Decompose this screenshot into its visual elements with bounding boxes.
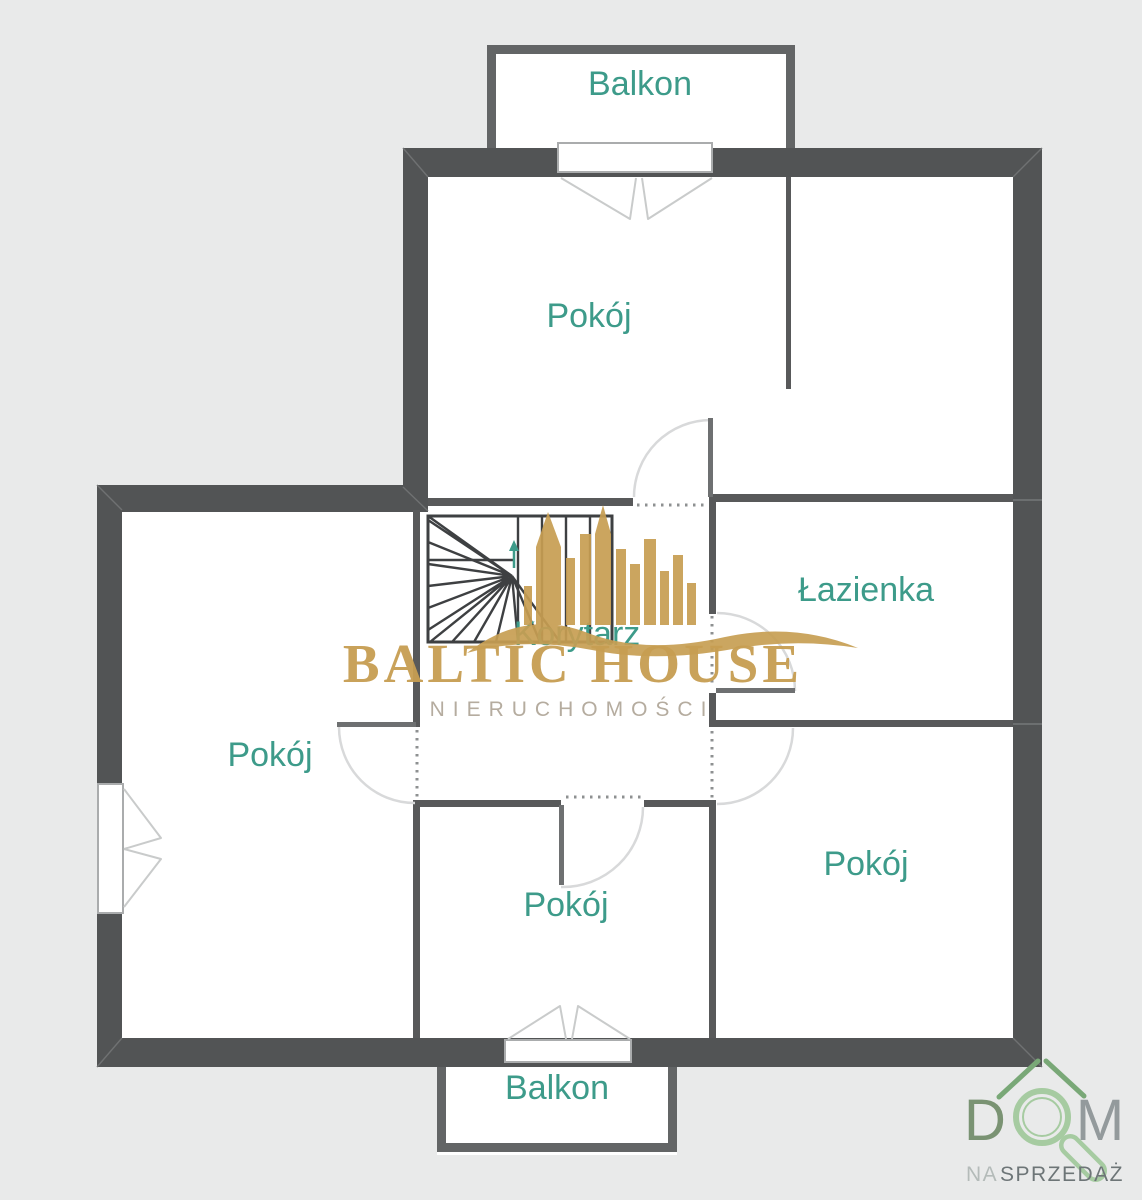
window-frame (98, 784, 123, 913)
room-label-lazienka: Łazienka (798, 571, 934, 609)
room-label-balkon-bottom: Balkon (505, 1069, 609, 1107)
door-leaf (708, 418, 713, 497)
door-leaf (559, 805, 564, 885)
room-label-pokoj-middle: Pokój (523, 886, 608, 924)
door-leaf (337, 722, 416, 727)
watermark-subtitle: NIERUCHOMOŚCI (430, 697, 715, 721)
balcony-door-sill (558, 143, 712, 172)
logo-letter-d: D (964, 1088, 1006, 1153)
floor-plan-page: Balkon Pokój Łazienka Korytarz Pokój Pok… (0, 0, 1142, 1200)
floor-plan-drawing: Balkon Pokój Łazienka Korytarz Pokój Pok… (0, 0, 1142, 1200)
balcony-door-sill (505, 1040, 631, 1062)
room-label-pokoj-left: Pokój (227, 736, 312, 774)
room-top-partition-stub (786, 177, 791, 389)
room-label-pokoj-right: Pokój (823, 845, 908, 883)
room-label-pokoj-top: Pokój (546, 297, 631, 335)
watermark-title: BALTIC HOUSE (343, 633, 803, 694)
room-label-balkon-top: Balkon (588, 65, 692, 103)
logo-tagline-sprzedaz: SPRZEDAŻ (1000, 1163, 1124, 1186)
logo-tagline-na: NA (966, 1163, 998, 1186)
logo-letter-m: M (1076, 1088, 1124, 1153)
